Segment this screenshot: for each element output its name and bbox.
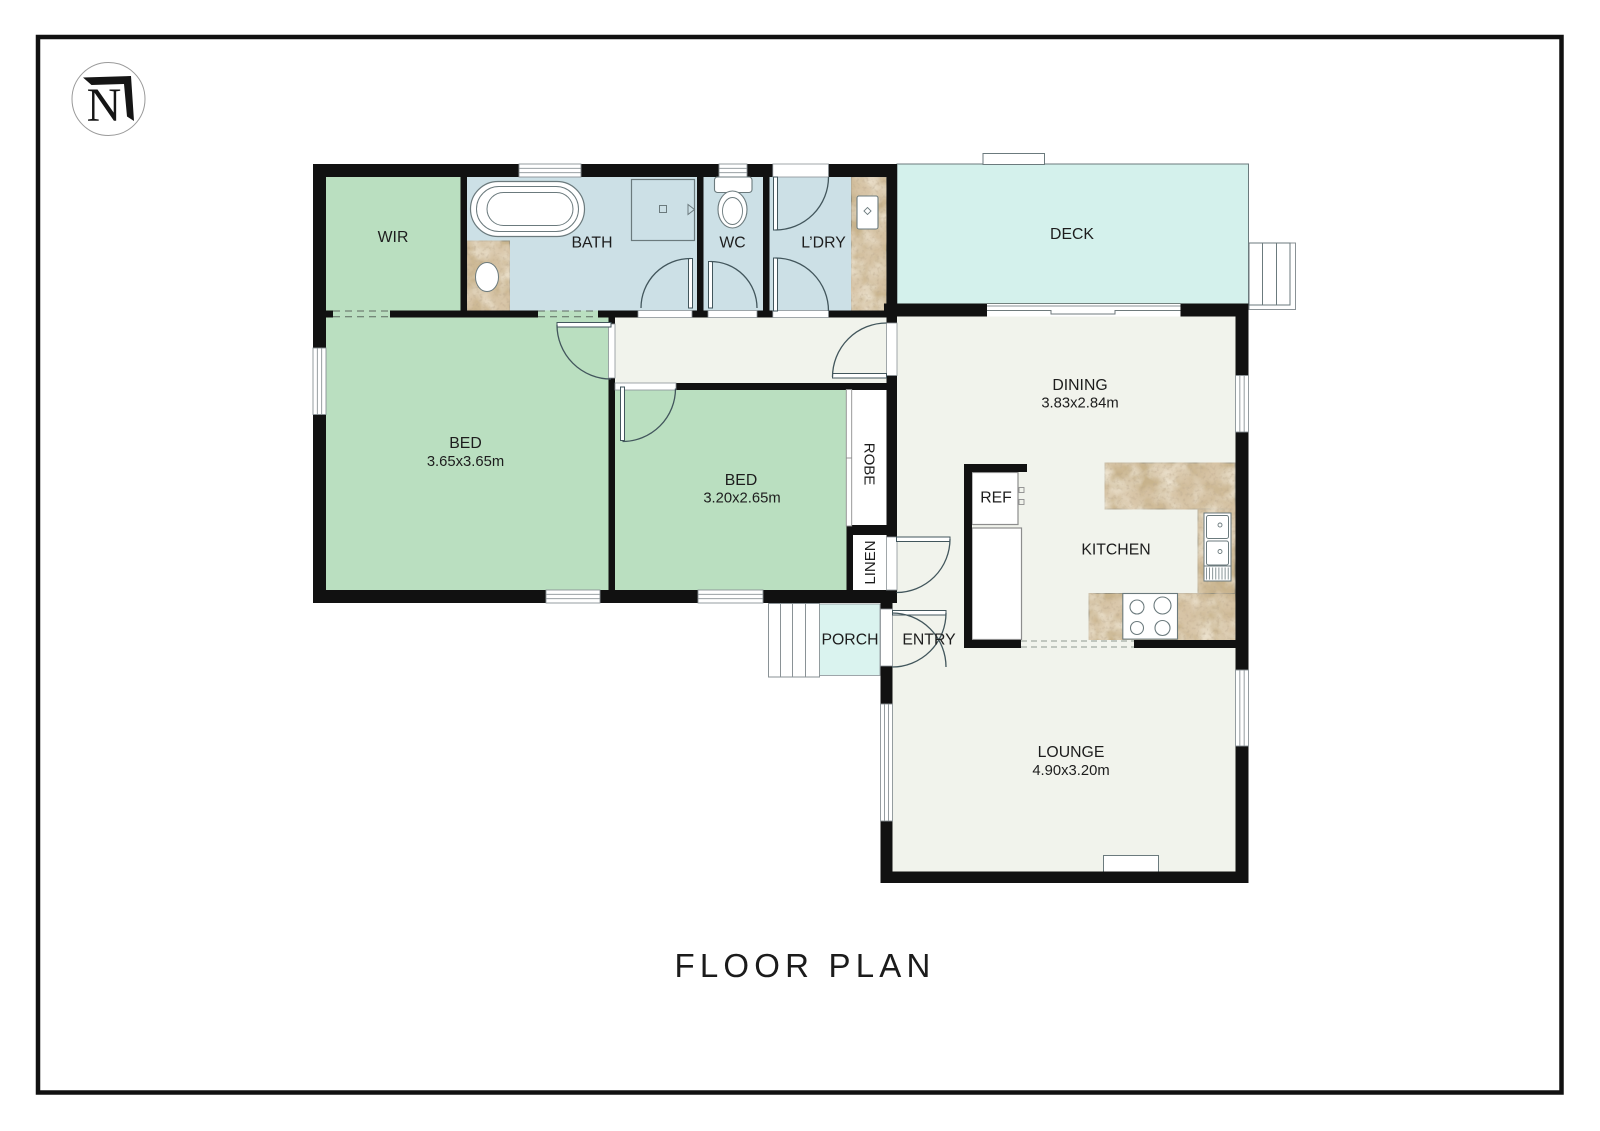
svg-text:ROBE: ROBE [861, 443, 878, 486]
svg-text:3.65x3.65m: 3.65x3.65m [427, 454, 504, 470]
svg-text:DINING: DINING [1052, 377, 1107, 394]
svg-text:4.90x3.20m: 4.90x3.20m [1032, 763, 1109, 779]
svg-text:PORCH: PORCH [821, 632, 878, 649]
svg-text:FLOOR PLAN: FLOOR PLAN [674, 947, 935, 984]
svg-text:N: N [87, 79, 122, 132]
svg-text:WIR: WIR [378, 229, 409, 246]
svg-text:3.20x2.65m: 3.20x2.65m [703, 491, 780, 507]
svg-text:DECK: DECK [1050, 226, 1094, 243]
svg-text:WC: WC [719, 235, 745, 252]
svg-text:KITCHEN: KITCHEN [1081, 542, 1150, 559]
svg-text:REF: REF [980, 490, 1012, 507]
svg-text:ENTRY: ENTRY [902, 632, 956, 649]
svg-text:L’DRY: L’DRY [801, 235, 846, 252]
svg-text:LOUNGE: LOUNGE [1038, 744, 1105, 761]
svg-text:BED: BED [725, 472, 757, 489]
svg-text:BATH: BATH [572, 235, 613, 252]
svg-text:3.83x2.84m: 3.83x2.84m [1041, 396, 1118, 412]
svg-text:BED: BED [449, 435, 481, 452]
svg-text:LINEN: LINEN [862, 540, 879, 584]
